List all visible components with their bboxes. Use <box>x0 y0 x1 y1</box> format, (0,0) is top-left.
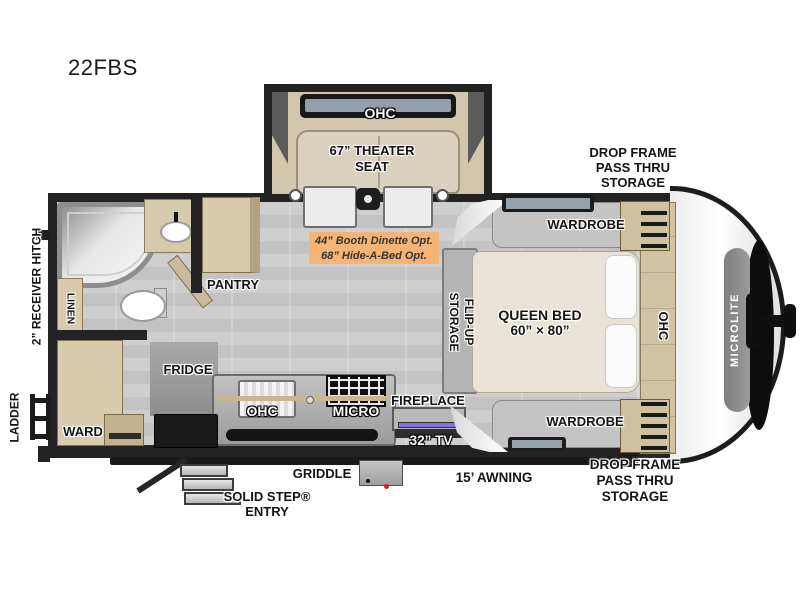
entry-step-1 <box>180 464 228 477</box>
linen-label: LINEN <box>63 284 78 334</box>
fridge-unit <box>154 414 218 448</box>
tongue-jack-icon <box>746 293 761 349</box>
counter-shelf-left <box>218 396 306 401</box>
receiver-hitch-label: 2” RECEIVER HITCH <box>30 221 45 353</box>
solid-step-label: SOLID STEP® ENTRY <box>205 489 329 519</box>
cupholder-right-icon <box>436 189 449 202</box>
fireplace-label: FIREPLACE <box>383 393 473 408</box>
wardrobe-top-label: WARDROBE <box>526 217 646 232</box>
storage-label-top: DROP FRAME PASS THRU STORAGE <box>553 145 713 190</box>
pillow-bottom <box>605 324 637 388</box>
ladder-label: LADDER <box>8 389 23 447</box>
pantry-label: PANTRY <box>193 277 273 292</box>
storage-label-bottom: DROP FRAME PASS THRU STORAGE <box>555 457 715 505</box>
ward-label: WARD <box>43 424 123 439</box>
counter-shelf-right <box>312 396 388 401</box>
fridge-label: FRIDGE <box>148 362 228 377</box>
cupholder-left-icon <box>289 189 302 202</box>
ohc-slideout-label: OHC <box>290 106 470 121</box>
awning-label: 15’ AWNING <box>434 470 554 485</box>
ohc-kitchen-label: OHC <box>226 404 298 419</box>
counter-mat <box>226 429 378 441</box>
bath-sink <box>160 221 192 243</box>
toilet <box>120 290 166 322</box>
bedroom-window-bottom <box>508 437 566 451</box>
ottoman-left <box>303 186 357 228</box>
sink-knob-icon <box>306 396 314 404</box>
pantry-cabinet <box>202 197 260 273</box>
model-title: 22FBS <box>68 55 138 81</box>
slideout-wall-left <box>272 92 288 164</box>
hitch-knob-icon <box>784 304 796 338</box>
ladder-rung-1 <box>30 398 51 403</box>
slideout-wall-right <box>468 92 484 164</box>
flip-up-storage-label: FLIP-UP STORAGE <box>444 276 476 368</box>
ohc-bed-label: OHC <box>655 281 671 371</box>
queen-bed-label: QUEEN BED 60” × 80” <box>480 307 600 339</box>
dinette-option-callout: 44” Booth Dinette Opt. 68” Hide-A-Bed Op… <box>309 232 439 264</box>
ottoman-right <box>383 186 433 228</box>
seat-console <box>356 188 380 210</box>
griddle-label: GRIDDLE <box>262 466 382 481</box>
bedroom-window-top <box>502 195 594 212</box>
rear-bumper <box>38 446 50 462</box>
faucet-icon <box>174 212 178 222</box>
tv-strip <box>398 422 458 428</box>
pillow-top <box>605 255 637 319</box>
floorplan-canvas: 22FBS OHC 67” THEATER SEAT LINEN PANTRY … <box>0 0 800 600</box>
wardrobe-bottom-label: WARDROBE <box>525 414 645 429</box>
theater-seat-label: 67” THEATER SEAT <box>292 143 452 175</box>
ladder-rung-2 <box>30 416 51 421</box>
fridge-surround <box>150 342 218 416</box>
micro-label: MICRO <box>320 404 392 419</box>
griddle-knob-red-icon <box>384 484 389 489</box>
tv-label: 32” TV <box>393 433 469 448</box>
brand-label: MICROLITE <box>728 270 744 390</box>
